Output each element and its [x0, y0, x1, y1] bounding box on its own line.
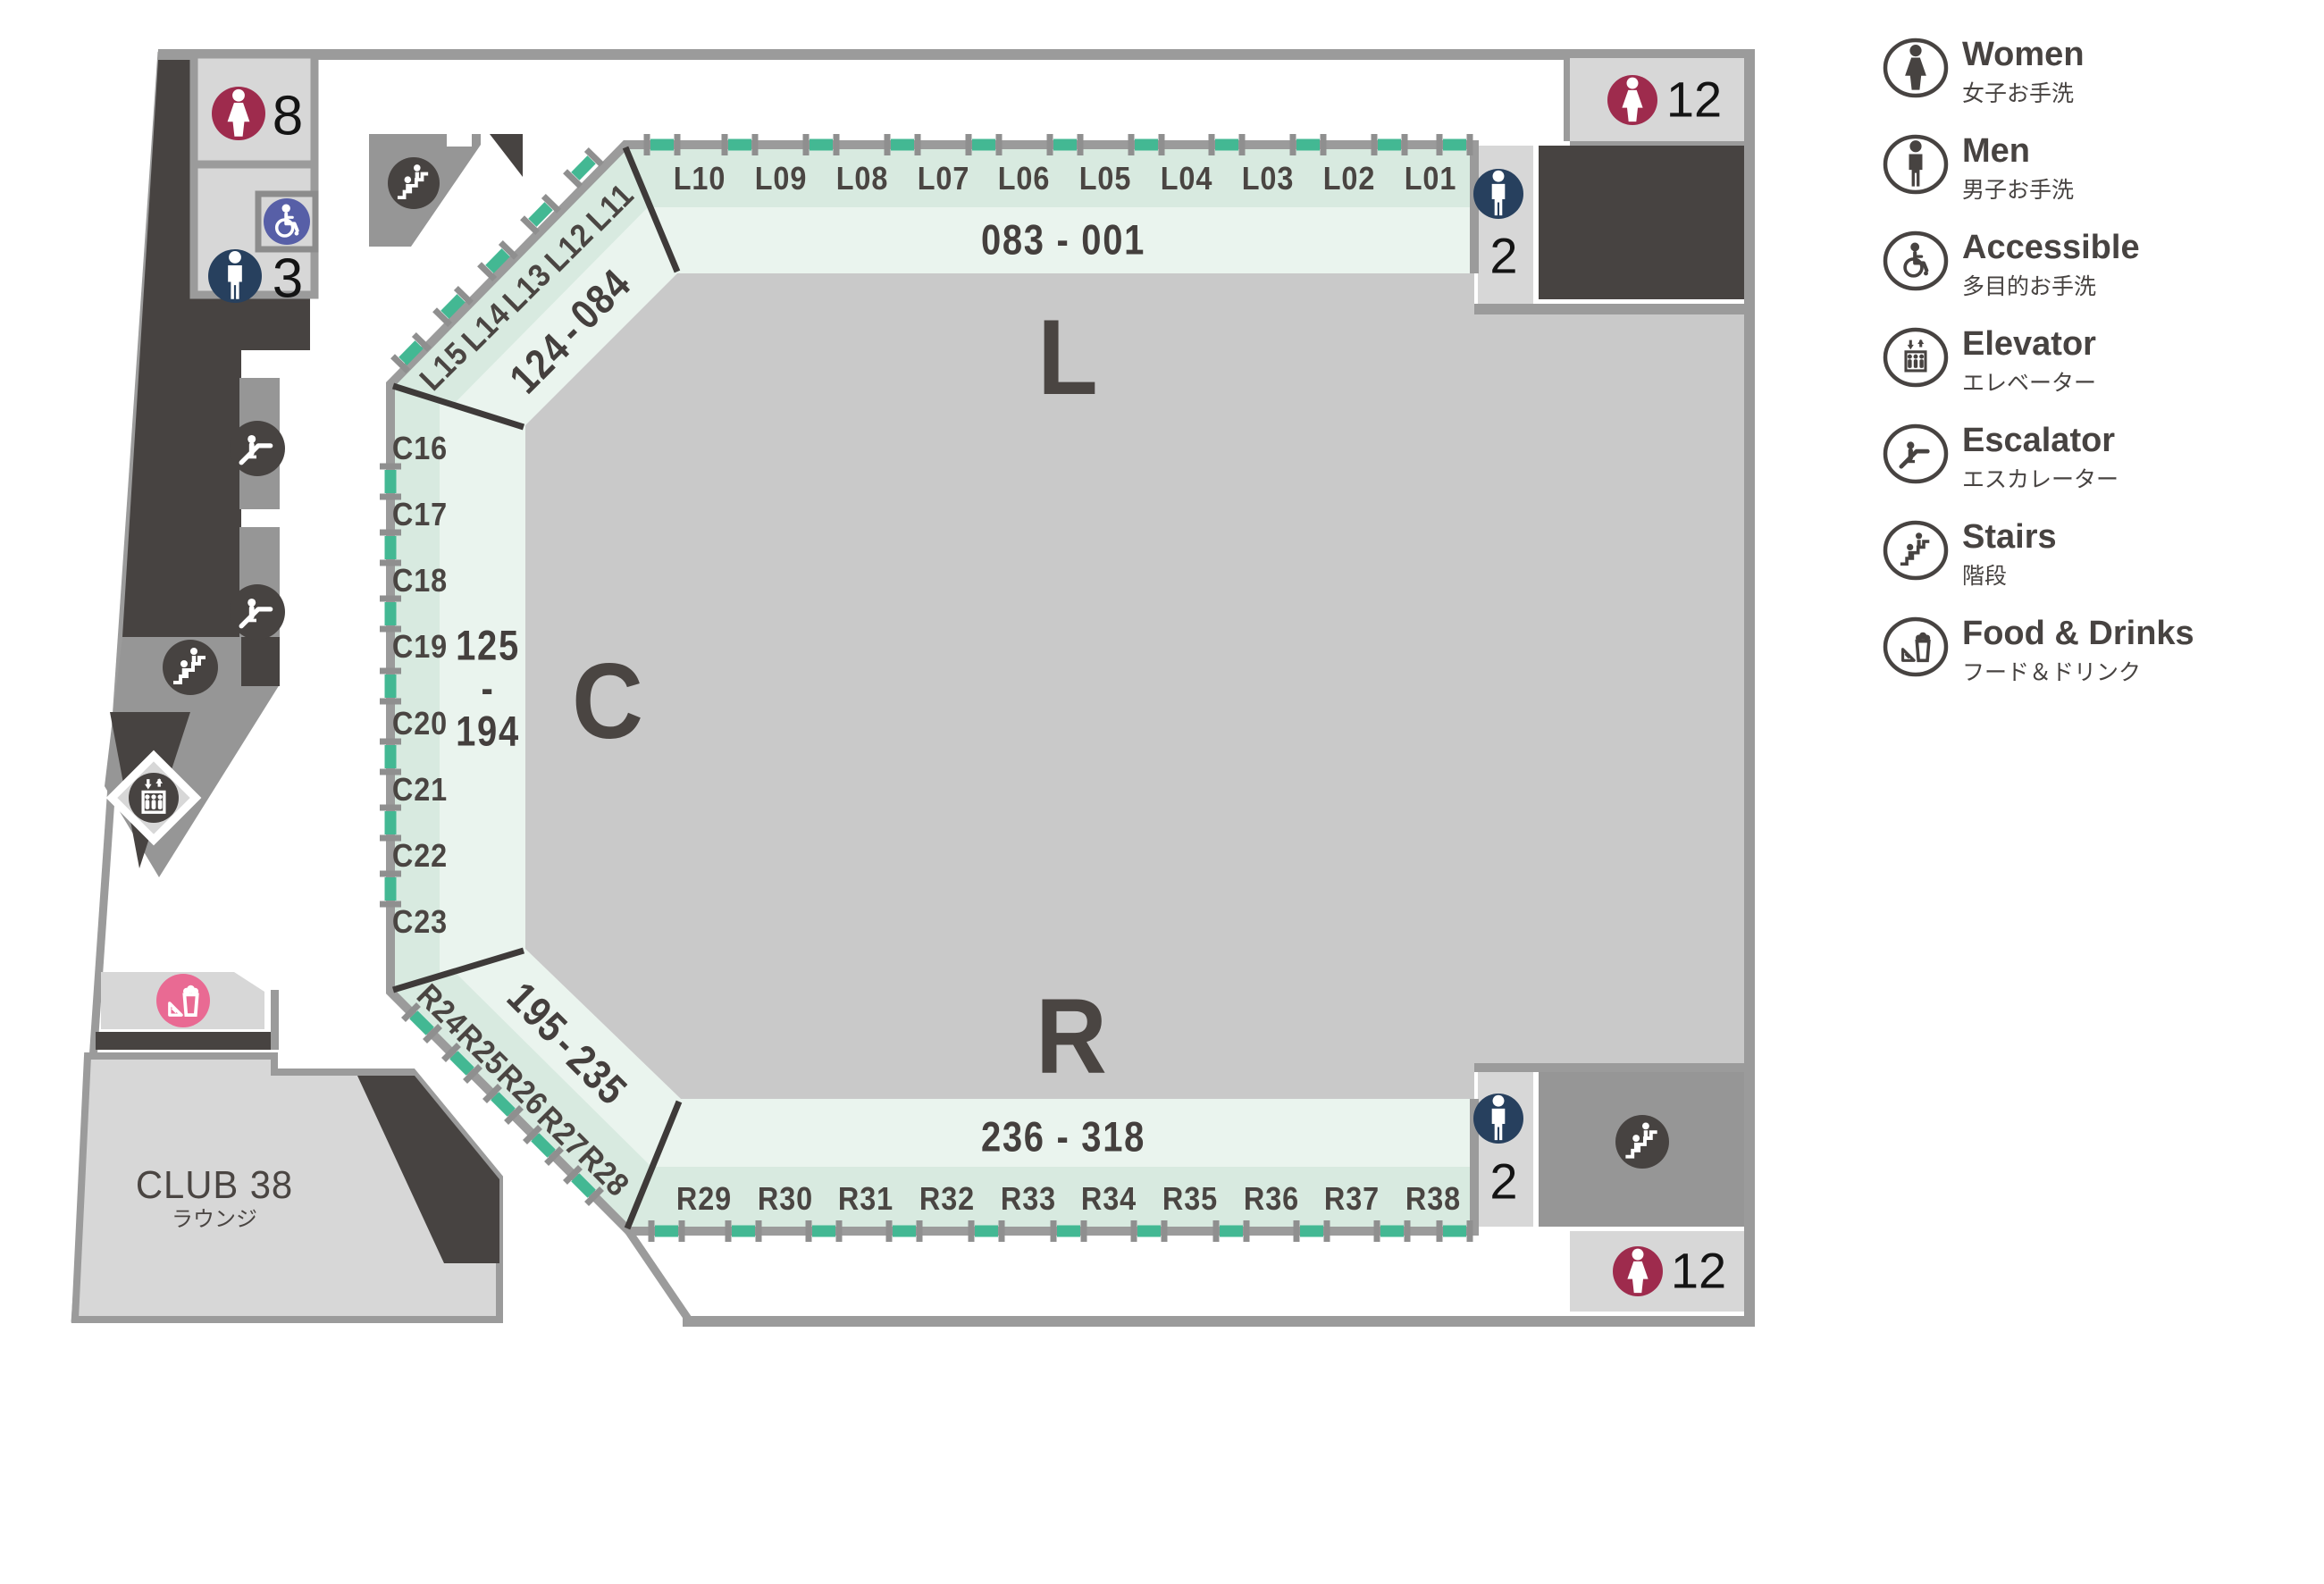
- section-label-r31: R31: [838, 1180, 894, 1218]
- legend-subtitle: 階段: [1962, 558, 2057, 591]
- food-drinks-icon: [1880, 615, 1951, 679]
- women-count-nw: 8: [273, 85, 303, 148]
- legend-title: Food & Drinks: [1962, 616, 2194, 652]
- seat-range-left-from: 125: [456, 621, 520, 670]
- women-icon: [1880, 36, 1951, 100]
- women-icon: [1607, 75, 1657, 125]
- section-label-c19: C19: [392, 628, 448, 666]
- food-drinks-icon: [156, 974, 210, 1027]
- escalator-icon: [230, 584, 285, 640]
- legend-item-women: Women女子お手洗: [1880, 36, 2309, 102]
- legend-item-elevator: Elevatorエレベーター: [1880, 325, 2309, 391]
- section-label-c18: C18: [392, 562, 448, 599]
- elevator-icon: [1880, 325, 1951, 390]
- section-label-c23: C23: [392, 903, 448, 941]
- stairs-icon: [1880, 518, 1951, 582]
- legend-item-escalator: Escalatorエスカレーター: [1880, 422, 2309, 488]
- legend-subtitle: 女子お手洗: [1962, 76, 2085, 108]
- section-label-r34: R34: [1081, 1180, 1137, 1218]
- section-label-c22: C22: [392, 837, 448, 875]
- women-icon: [1613, 1246, 1663, 1296]
- section-label-l07: L07: [918, 160, 970, 197]
- men-icon: [1473, 1094, 1523, 1144]
- section-label-l08: L08: [836, 160, 889, 197]
- legend-subtitle: エレベーター: [1962, 365, 2096, 398]
- seat-range-top: 083 - 001: [981, 215, 1145, 264]
- legend-title: Men: [1962, 134, 2074, 170]
- accessible-icon: [1880, 229, 1951, 293]
- legend: Women女子お手洗 Men男子お手洗 Accessible多目的お手洗 Ele…: [1880, 36, 2309, 711]
- stairs-icon: [163, 640, 218, 695]
- escalator-icon: [1880, 422, 1951, 486]
- women-icon: [212, 87, 265, 140]
- section-label-r30: R30: [758, 1180, 813, 1218]
- arena-floor: [525, 273, 1744, 1099]
- section-label-c16: C16: [392, 430, 448, 467]
- section-label-c17: C17: [392, 496, 448, 533]
- section-label-l09: L09: [755, 160, 808, 197]
- legend-title: Women: [1962, 38, 2085, 73]
- section-label-l03: L03: [1242, 160, 1295, 197]
- women-count-se: 12: [1671, 1242, 1726, 1300]
- section-label-r33: R33: [1001, 1180, 1056, 1218]
- legend-subtitle: 多目的お手洗: [1962, 269, 2140, 301]
- men-count-ne: 2: [1489, 227, 1517, 285]
- women-count-ne: 12: [1666, 71, 1722, 129]
- section-label-r35: R35: [1162, 1180, 1218, 1218]
- legend-title: Stairs: [1962, 520, 2057, 556]
- legend-item-stairs: Stairs階段: [1880, 518, 2309, 584]
- stairs-icon: [1615, 1115, 1669, 1169]
- section-label-l10: L10: [674, 160, 726, 197]
- legend-title: Elevator: [1962, 327, 2096, 363]
- seat-range-left-to: 194: [456, 707, 520, 756]
- legend-subtitle: 男子お手洗: [1962, 172, 2074, 205]
- zone-letter-r: R: [1036, 975, 1107, 1098]
- section-label-r32: R32: [919, 1180, 975, 1218]
- stairs-icon: [388, 157, 440, 209]
- men-icon: [208, 249, 262, 303]
- section-label-r29: R29: [676, 1180, 732, 1218]
- legend-subtitle: エスカレーター: [1962, 462, 2118, 494]
- men-count-nw: 3: [273, 247, 303, 311]
- section-label-l06: L06: [998, 160, 1051, 197]
- accessible-icon: [264, 198, 310, 245]
- men-icon: [1473, 169, 1523, 219]
- legend-subtitle: フード＆ドリンク: [1962, 655, 2194, 687]
- zone-letter-c: C: [572, 640, 643, 763]
- men-icon: [1880, 132, 1951, 197]
- seat-range-left-dash: -: [481, 664, 494, 713]
- section-label-l05: L05: [1079, 160, 1132, 197]
- section-label-c20: C20: [392, 705, 448, 742]
- seat-range-bottom: 236 - 318: [981, 1112, 1145, 1161]
- section-label-c21: C21: [392, 771, 448, 809]
- elevator-icon: [129, 773, 179, 823]
- legend-item-food: Food & Drinksフード＆ドリンク: [1880, 615, 2309, 681]
- legend-title: Escalator: [1962, 423, 2118, 459]
- section-label-r37: R37: [1324, 1180, 1380, 1218]
- section-label-l01: L01: [1405, 160, 1457, 197]
- section-band-left: [390, 384, 440, 992]
- zone-letter-l: L: [1037, 296, 1097, 419]
- legend-title: Accessible: [1962, 230, 2140, 266]
- men-count-se: 2: [1489, 1152, 1517, 1211]
- section-label-r38: R38: [1405, 1180, 1461, 1218]
- escalator-icon: [230, 421, 285, 476]
- section-label-r36: R36: [1244, 1180, 1299, 1218]
- legend-item-accessible: Accessible多目的お手洗: [1880, 229, 2309, 295]
- section-label-l04: L04: [1161, 160, 1213, 197]
- club38-subtitle: ラウンジ: [172, 1202, 257, 1233]
- venue-floor-map: L10 L09 L08 L07 L06 L05 L04 L03 L02 L01 …: [0, 0, 2324, 1584]
- section-label-l02: L02: [1323, 160, 1376, 197]
- legend-item-men: Men男子お手洗: [1880, 132, 2309, 198]
